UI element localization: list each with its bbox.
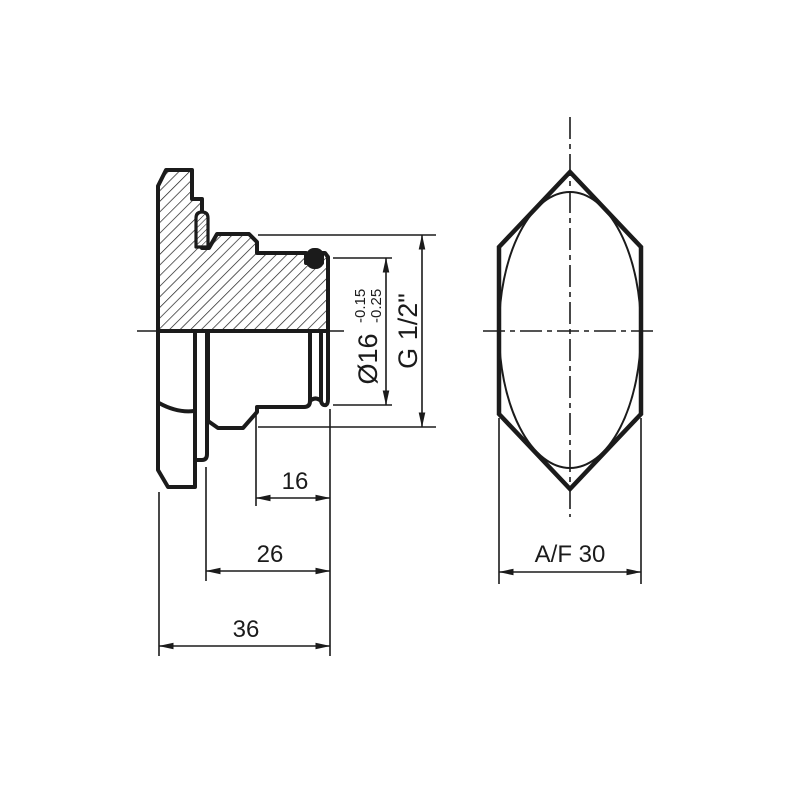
- drawing-canvas: 16 26 36 Ø16 -0.15 -0.25 G 1/2": [0, 0, 800, 800]
- dim-text-tolerance-lower: -0.25: [368, 289, 385, 323]
- side-section-view: [137, 170, 345, 487]
- dim-text-tolerance-upper: -0.15: [352, 289, 369, 323]
- dim-text-thread-length: 16: [282, 468, 309, 495]
- o-ring-seal: [306, 248, 324, 269]
- flange-thread-outline-bottom: [208, 331, 310, 428]
- dim-label-spigot-diameter: Ø16 -0.15 -0.25: [352, 289, 385, 385]
- hex-chamfer-arc: [159, 403, 194, 411]
- washer-section-outline: [196, 212, 208, 247]
- body-section-outline: [158, 170, 328, 331]
- dim-text-shoulder-length: 26: [257, 541, 284, 568]
- dim-text-spigot-diameter: Ø16: [353, 333, 383, 384]
- dim-text-overall-length: 36: [233, 616, 260, 643]
- dim-text-across-flats: A/F 30: [535, 541, 606, 568]
- end-view: A/F 30: [483, 117, 657, 584]
- dim-label-thread-size: G 1/2": [393, 293, 423, 369]
- technical-drawing: 16 26 36 Ø16 -0.15 -0.25 G 1/2": [0, 0, 800, 800]
- dim-text-thread-size: G 1/2": [393, 293, 423, 369]
- groove-end-outline-bottom: [310, 331, 328, 405]
